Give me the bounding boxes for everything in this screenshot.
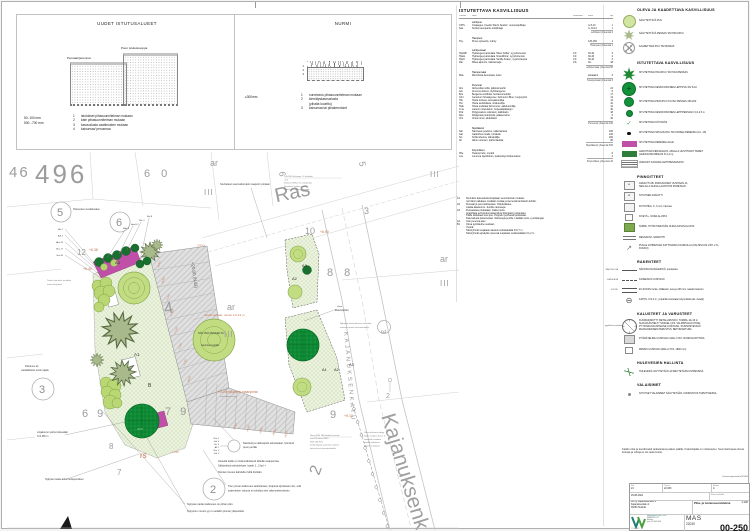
title-block-cell: 29.08.2022 xyxy=(630,493,710,500)
map-code: rs xyxy=(140,451,147,460)
table-row: Perennat yhteensä 192 xyxy=(459,120,613,125)
plant-code: Vmi 40 xyxy=(56,255,64,257)
legend-symbol-icon xyxy=(619,296,639,305)
depth-label: 500...700 mm xyxy=(24,121,44,125)
svg-text:liittymä ennallaan: liittymä ennallaan xyxy=(364,445,381,448)
area-tag: K xyxy=(128,367,131,372)
plant-code: Mde 3 xyxy=(123,228,130,230)
annotation: vastakallistus tontin rajalle xyxy=(21,369,49,372)
symbol-legend-panel: OLEVA JA KAADETTAVA KASVILLISUUS SÄILYTE… xyxy=(605,6,748,405)
legend-item: ISTUTETTAVA KESKIKOKOINEN LEHTIPUU RV 8-… xyxy=(605,82,748,96)
annotation: Hulevesien suodatusalue xyxy=(73,208,100,211)
legend-symbol-icon xyxy=(619,120,639,127)
section-title: ISTUTETTAVA KASVILLISUUS xyxy=(637,61,748,65)
parcel-number: 8 xyxy=(109,442,114,451)
legend-item: KIVITUHKA, 0...6 mm, harmaa xyxy=(605,203,748,212)
plant-code: Wei 1 xyxy=(139,220,145,222)
storey-label: III xyxy=(204,188,214,197)
layer-numbers: 123 xyxy=(298,65,304,77)
parcel-number: 496 xyxy=(35,159,87,189)
legend-symbol-icon xyxy=(619,29,639,40)
annotation: NÄKYMÄ PENKEILTÄ xyxy=(198,331,224,335)
legend-lawn: NURMI 123 ≥300mm 1nurmiseos pihasuunnite… xyxy=(234,14,452,150)
zoning-label: ar xyxy=(440,254,448,264)
svg-text:Oleva tukimuuri säilyy: Oleva tukimuuri säilyy xyxy=(364,431,385,434)
legend-symbol-icon xyxy=(619,82,639,96)
title-block: Piirt.24 Työ n:o22.030 MuutosA 29.08.202… xyxy=(629,483,750,531)
street-name: KAJANUKSENKATU xyxy=(342,332,356,423)
plant-table-title: ISTUTETTAVA KASVILLISUUS xyxy=(459,8,613,13)
plant-table-body: Lehtipuut CrPS Crataegus ×media 'Paul's … xyxy=(459,21,613,163)
numbers-cell: MAS 00-250 22030 xyxy=(685,515,749,531)
drawing-scale: 1:100 xyxy=(742,501,749,504)
table-row: Havupuut yhteensä 1 xyxy=(459,43,613,48)
section-label: Puun istutuskuoppa xyxy=(121,46,147,50)
legend-symbol-icon xyxy=(619,97,639,107)
legend-symbol-icon xyxy=(619,319,639,334)
drawing-number: 00-250 xyxy=(720,523,748,531)
cross-section-tree-pit xyxy=(123,53,178,106)
annotation: uusi tukimuuri yp xyxy=(220,395,237,398)
table-row: Köynnökset yhteensä 10 xyxy=(459,158,613,163)
storey-label: III xyxy=(224,330,234,339)
title-block-cell: Työ n:o22.030 xyxy=(663,484,712,492)
table-row: Havupensaat yhteensä 3 xyxy=(459,77,613,82)
legend-item: ISTUTETTAVA KESKIKOKOINEN LEHTIPENSAS h … xyxy=(605,109,748,118)
legend-title: NURMI xyxy=(235,21,451,26)
project-address: As Oy Kajanuksenkatu 2 Kajanuksenkatu 2 … xyxy=(630,501,693,514)
parcel-number: 2 xyxy=(307,463,326,477)
legend-symbol-icon xyxy=(619,223,639,232)
legend-item: KOURUEV-KOURU teräs, ritiläkansi, leveys… xyxy=(605,286,748,295)
height-datum: Korkeusjärjestelmä N2000 xyxy=(622,476,748,478)
depth-label: 50..100 mm xyxy=(24,116,41,120)
title-block-cell: MuutosA xyxy=(712,484,749,492)
plant-code: Adi 3 xyxy=(58,235,64,238)
legend-symbol-icon xyxy=(619,280,639,281)
legend-symbol-icon xyxy=(619,335,639,344)
parcel-number: 9 xyxy=(330,409,336,421)
detail-number: 5 xyxy=(57,207,63,219)
firm-info: MAISEMASUUNNITTELU WIHERVUO OY Helsinki … xyxy=(647,515,667,530)
site-plan: 46 496 6 0 8 8 12 10 4 7 9 6 9 8 7 9 2 2… xyxy=(7,150,459,530)
annotation: Tontin raja-alue siistitään xyxy=(47,279,72,282)
ground-level-note: +0.00 nykyinen maanpinta xyxy=(218,390,258,394)
legend-item: PYÖRÄTELINE UUSITAAN, MALLI XXX, RUNKOLU… xyxy=(605,335,748,344)
section-title: KALUSTEET JA VARUSTEET xyxy=(637,312,748,316)
legend-symbol-icon xyxy=(619,288,639,293)
legend-symbol-icon xyxy=(619,110,639,117)
legend-list: 1nurmiseos pihasuunnitelman mukaan2kierr… xyxy=(301,93,362,110)
legend-item: NYKYISET VALAISIMET SÄILYTETÄÄN, KUNNOST… xyxy=(605,390,748,399)
plant-code: Sci 3 xyxy=(214,444,220,446)
legend-symbol-icon xyxy=(619,214,639,221)
legend-symbol-icon xyxy=(619,151,639,157)
annotation: Linjakourun purku kivipesään xyxy=(37,431,69,434)
legend-item: KAIDE/AITAKAIDE/AITA UUSITAAN xyxy=(605,276,748,285)
svg-text:Pinnat sovitetaan portaittain: Pinnat sovitetaan portaittain xyxy=(284,188,310,191)
area-tag: A1 xyxy=(134,352,140,357)
annotation: Sovitetaan saumattomasti naapurin pintaa… xyxy=(220,182,270,186)
legend-item: ISTUTETTAVA HAVUPUU TAI HAVUPENSAS xyxy=(605,67,748,80)
svg-text:Oleva SVK 160 liitetään kaivoo: Oleva SVK 160 liitetään kaivoon xyxy=(310,434,341,437)
annotation: Nykyistä luonnonkiveä siirretään xyxy=(340,322,372,325)
title-block-cell: Piirt.24 xyxy=(630,484,663,492)
depth-label: ≥300mm xyxy=(245,95,257,99)
detail-number: 3 xyxy=(39,384,45,396)
svg-text:Korkeus SVK2, kts. liitoskohta: Korkeus SVK2, kts. liitoskohta xyxy=(284,182,313,185)
parcel-number: 46 xyxy=(9,164,30,181)
svg-text:kaide uusitaan h=1,1 m: kaide uusitaan h=1,1 m xyxy=(364,434,386,437)
annotation: kasviverkko xyxy=(335,308,349,312)
annotation: muurin viereen istutusalueelle xyxy=(340,326,370,329)
query-label: ???? xyxy=(197,244,205,248)
annotation: Nykyisen aidan kaltevuus on pihan päin. xyxy=(187,502,234,506)
parcel-number: 3 xyxy=(364,206,369,216)
svg-text:SVK 160 PVC: SVK 160 PVC xyxy=(310,441,324,443)
plant-table: ISTUTETTAVA KASVILLISUUS Tunnus Nimi Ist… xyxy=(459,8,613,163)
firm-cell: MAISEMASUUNNITTELU WIHERVUO OY Helsinki … xyxy=(630,515,685,531)
note-line: Taimiryhmät ajoväylän vieressä suojataan… xyxy=(457,233,615,236)
table-row: Lehtipuut yhteensä 2 xyxy=(459,30,613,35)
annotation: Narsissit ja valkosipulit sekoitetaan ry… xyxy=(243,441,294,445)
parcel-number: 12 xyxy=(77,248,86,257)
annotation: sadevesien valunta ei kohdistu tien rake… xyxy=(228,489,290,493)
plant-code: Hfo 7 xyxy=(58,229,64,231)
legend-symbol-icon: a xyxy=(619,181,639,190)
spot-elevation: +6.50 xyxy=(320,230,329,234)
north-arrow xyxy=(60,516,72,529)
legend-item: HULEVESIÄ VIIVYTETÄÄN JA IMEYTETÄÄN KIVI… xyxy=(605,368,748,377)
legend-symbol-icon xyxy=(619,244,639,252)
area-tag: A1 xyxy=(322,367,328,372)
zoning-label: ar xyxy=(210,158,218,168)
table-row: Lehtipensaat yhteensä 56 xyxy=(459,64,613,69)
legend-section-planted: ISTUTETTAVA KASVILLISUUS ISTUTETTAVA HAV… xyxy=(605,61,748,168)
legend-symbol-icon xyxy=(619,15,639,28)
annotation: puun juurille xyxy=(243,445,258,449)
legend-item: NÄKÖSUOJANÄKÖSUOJASÄLEIKKÖ, puutavara xyxy=(605,266,748,275)
svg-text:asfaltti paikataan: asfaltti paikataan xyxy=(364,441,380,444)
tree-tag: UhP xyxy=(137,427,143,431)
legend-item: KATOS, h=2,2 m, ympärille istutetaan köy… xyxy=(605,296,748,305)
annotation: betoniset pylväät xyxy=(201,344,219,347)
storey-label: III xyxy=(430,170,440,179)
legend-item: ISTUTETTAVA KÖYNNÖS xyxy=(605,119,748,128)
project-number: 22030 xyxy=(686,522,695,526)
legend-symbol-icon xyxy=(619,347,639,354)
legend-item: REUNAKIVI, GRANIITTI xyxy=(605,234,748,243)
legend-list: 1istutukset pihasuunnitelman mukaan2kate… xyxy=(73,114,133,131)
annotation: Nykyisen kaide-aidan teräspunokset xyxy=(45,478,84,481)
parcel-number: 6 9 xyxy=(82,408,106,420)
annotation: Säilytettävä siirtolohkare, laade 1...2 … xyxy=(218,464,266,468)
plant-code: All 2 xyxy=(215,446,220,449)
annotation: Painanne tai xyxy=(25,365,39,368)
storey-label: III xyxy=(440,279,450,288)
detail-number: 6 xyxy=(116,217,122,229)
firm-logo xyxy=(631,515,647,529)
parcel-number: 2 xyxy=(386,393,390,400)
legend-item: ANYKYINEN ASFALTTI xyxy=(605,192,748,201)
plant-code: HpaG 2 xyxy=(131,224,139,226)
table-row: Sipulikasvit yhteensä 530 xyxy=(459,142,613,147)
title-block-cell: Rakennuskohde xyxy=(710,493,749,500)
legend-item: aASFALTTI AB, PAIKKAUKSET UUSITAAN JASEN… xyxy=(605,181,748,190)
general-note: Kaikki mitat ja koordinaatit tarkistetta… xyxy=(622,448,749,455)
annotation: Alueella kallio on todennäköisesti lähel… xyxy=(218,459,280,463)
section-title: OLEVA JA KAADETTAVA KASVILLISUUS xyxy=(637,8,748,12)
annotation: nurmi korjataan xyxy=(47,283,63,286)
stairs-note: olevat portaat, nousu ≤ 0,13 m xyxy=(204,313,245,317)
discipline-code: MAS xyxy=(686,515,748,522)
svg-text:+6.1: +6.1 xyxy=(284,179,289,181)
svg-text:700-550 Ve-kiveys 1:1 luiskatt: 700-550 Ve-kiveys 1:1 luiskattu xyxy=(284,175,314,178)
svg-text:kaivuu käsin juuristoalueella: kaivuu käsin juuristoalueella xyxy=(310,447,337,450)
legend-symbol-icon: A xyxy=(619,192,639,201)
drawing-sheet: UUDET ISTUTUSALUEET Puun istutuskuoppa P… xyxy=(1,1,749,529)
annotation: oleva xyxy=(337,306,343,308)
parcel-number: 8 8 xyxy=(327,267,354,279)
fold-tick xyxy=(255,2,256,8)
plant-table-header: Tunnus Nimi Istutusväli Koko kpl xyxy=(459,15,613,19)
legend-symbol-icon xyxy=(619,67,639,80)
legend-symbol-icon xyxy=(619,160,639,168)
parcel-number: 6 0 xyxy=(144,168,171,180)
section-title: HULEVESIEN HALLINTA xyxy=(637,361,748,365)
legend-symbol-icon xyxy=(619,393,639,396)
parcel-number: 10 xyxy=(305,226,315,236)
legend-section-existing: OLEVA JA KAADETTAVA KASVILLISUUS SÄILYTE… xyxy=(605,8,748,54)
plant-code: Gal 2 xyxy=(214,453,220,455)
plant-code: Bco 17 xyxy=(56,249,64,251)
legend-item: PENKKI UUSITAAN (MALLI XXX, 1800 mm) xyxy=(605,346,748,355)
plant-code: Alm 24 xyxy=(56,241,64,244)
parcel-number: 7 xyxy=(117,468,122,477)
legend-symbol-icon xyxy=(619,236,639,241)
plant-code: Nar 1 xyxy=(214,449,220,452)
plant-code: Ral 8 xyxy=(147,216,153,218)
legend-symbol-icon xyxy=(619,42,639,54)
svg-text:Saumaus 3 viikon sisällä: Saumaus 3 viikon sisällä xyxy=(284,186,308,188)
legend-symbol-icon xyxy=(619,203,639,212)
legend-item: ISTUTETTAVA PERENNA-ALUE xyxy=(605,139,748,148)
spot-elevation: +6.40 xyxy=(83,267,92,271)
legend-item: ISTUTETTAVA PIKKUPUU TAI ISO PENSAS 150-… xyxy=(605,97,748,107)
section-title: PINNOITTEET xyxy=(637,175,748,179)
annotation: h=0,365 m xyxy=(37,435,48,438)
legend-section-stormwater: HULEVESIEN HALLINTA HULEVESIÄ VIIVYTETÄÄ… xyxy=(605,361,748,376)
legend-item: KAADETTAVA PUU TAI PENSAS xyxy=(605,42,748,54)
spot-elevation: +7.60 xyxy=(172,450,179,454)
spot-elevation: +6.38 xyxy=(89,248,98,252)
legend-section-structures: RAKENTEET NÄKÖSUOJANÄKÖSUOJASÄLEIKKÖ, pu… xyxy=(605,260,748,306)
legend-item: NURMI, HYÖDYNNETÄÄN OLEVA KASVUALUSTA xyxy=(605,223,748,232)
legend-symbol-icon xyxy=(619,270,639,271)
area-tag: A2 xyxy=(334,367,340,372)
legend-section-surfaces: PINNOITTEET aASFALTTI AB, PAIKKAUKSET UU… xyxy=(605,175,748,253)
drawing-title-cell: 1:100 Piha- ja istutussuunnitelma xyxy=(693,501,749,514)
legend-section-furniture: KALUSTEET JA VARUSTEET pyykinkuivausteli… xyxy=(605,312,748,354)
legend-item: VAPAASTI KASVAVA LEHTIPENSASAITA xyxy=(605,159,748,168)
parcel-number: 7 9 xyxy=(165,406,189,418)
legend-list-item: 4kaivumaa/ perusmaa xyxy=(73,127,133,131)
legend-item: LEIKATTAVA PENSASAITA, AIDALLA UUSITTAVA… xyxy=(605,149,748,158)
legend-symbol-icon xyxy=(619,368,639,376)
cross-section-lawn xyxy=(307,67,364,81)
legend-symbol-icon xyxy=(619,141,639,147)
legend-list-item: 3kaivumaa tai pihakerrokset xyxy=(301,106,362,110)
planting-area-lower xyxy=(285,310,345,412)
detail-number: 2 xyxy=(210,484,216,496)
svg-text:tontin liittymä, pinnoite uusi: tontin liittymä, pinnoite uusitaan xyxy=(310,444,340,447)
parcel-number: 5 xyxy=(357,161,368,168)
legend-item: pyykinkuivaustelineKUUMASINKITTY METALLI… xyxy=(605,319,748,334)
cross-section-shrubs xyxy=(70,62,127,106)
section-title: VALAISIMET xyxy=(637,383,748,387)
area-tag: A2 xyxy=(292,276,298,281)
spot-elevation: +9.10 xyxy=(344,414,353,418)
section-label: Pensaat/perennat xyxy=(67,56,91,60)
legend-symbol-icon xyxy=(619,132,639,136)
area-tag: A3 xyxy=(349,362,355,367)
legend-item: KIVEYS + SORA-ALUSTA xyxy=(605,213,748,222)
legend-section-lighting: VALAISIMET NYKYISET VALAISIMET SÄILYTETÄ… xyxy=(605,383,748,398)
legend-title: UUDET ISTUTUSALUEET xyxy=(17,21,237,26)
plant-code: Gal 4 xyxy=(214,441,220,443)
svg-text:reunatuki uusitaan: reunatuki uusitaan xyxy=(364,438,382,441)
annotation: Taimien istutus kahdella rivillä limittä… xyxy=(218,470,263,474)
survey-flag xyxy=(388,378,392,382)
annotation: Nykyinen muurin yp on asfaltin pinnan yl… xyxy=(187,509,244,513)
area-tag: A3 xyxy=(115,260,121,265)
section-title: RAKENTEET xyxy=(637,260,748,264)
legend-item: SÄILYTETTÄVÄ PENSAS TAI PIKKUPUU xyxy=(605,29,748,40)
legend-item: SÄILYTETTÄVÄ PUU xyxy=(605,15,748,28)
svg-text:uusi HV-kaivo Ø560: uusi HV-kaivo Ø560 xyxy=(310,438,329,440)
legend-planting-areas: UUDET ISTUTUSALUEET Puun istutuskuoppa P… xyxy=(16,14,238,150)
legend-item: ISTUTETTAVA SIPULIKASVI TAI KORKEA PEREN… xyxy=(605,129,748,138)
drawing-title: Piha- ja istutussuunnitelma xyxy=(694,501,730,505)
annotation: Tien pinnan kaltevuus tarkistetaan, kivi… xyxy=(228,484,302,488)
area-tag: A3 xyxy=(302,263,308,268)
area-notes: A1Nurmikon kasvualusta korjataan suunnit… xyxy=(457,198,615,236)
legend-item: PUILLE JOHDETAAN KATTOVESIÄ KOURUILLA (K… xyxy=(605,244,748,253)
zoning-label: ar xyxy=(227,302,235,312)
plant-code: Nar 5 xyxy=(214,437,220,440)
